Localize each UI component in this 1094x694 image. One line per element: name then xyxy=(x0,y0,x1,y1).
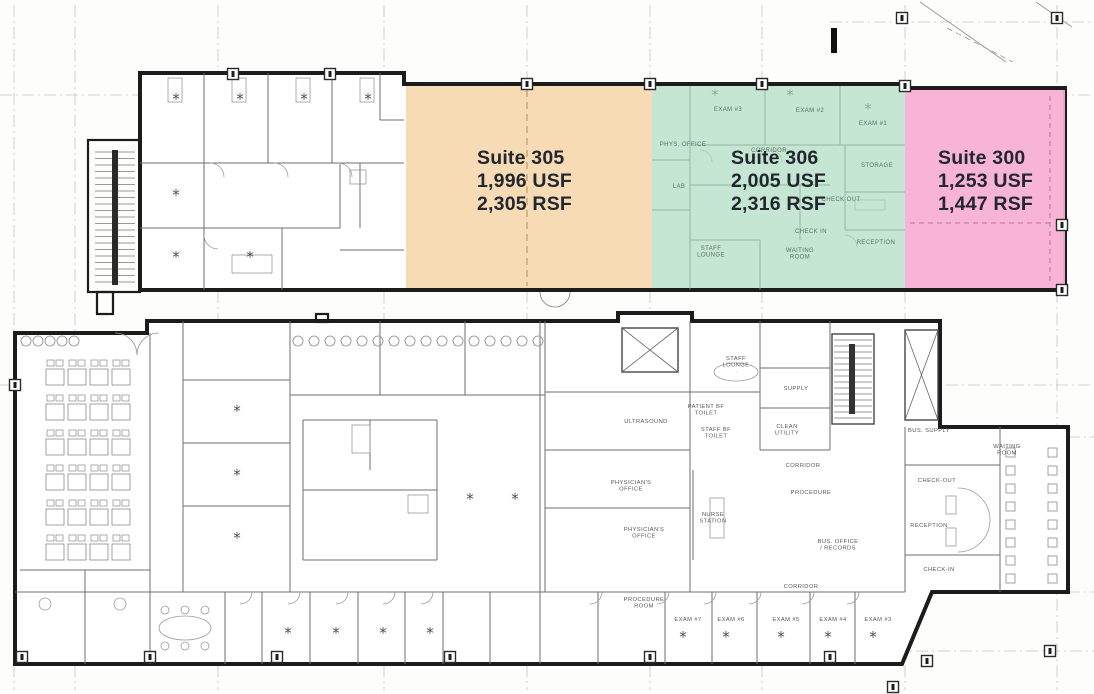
svg-text:PHYS. OFFICE: PHYS. OFFICE xyxy=(660,142,706,148)
svg-text:SUPPLY: SUPPLY xyxy=(784,386,809,392)
suite-305-label: Suite 305 1,996 USF 2,305 RSF xyxy=(477,147,572,216)
svg-text:*: * xyxy=(284,624,292,642)
svg-text:*: * xyxy=(379,624,387,642)
suite-300-usf: 1,253 USF xyxy=(938,170,1033,193)
floor-plan-drawing: ************************ EXAM #3EXAM #2E… xyxy=(0,0,1094,694)
svg-text:CHECK OUT: CHECK OUT xyxy=(822,197,861,203)
svg-text:EXAM #4: EXAM #4 xyxy=(819,617,847,623)
svg-text:CORRIDOR: CORRIDOR xyxy=(784,584,819,590)
svg-text:*: * xyxy=(172,90,180,108)
svg-text:*: * xyxy=(426,624,434,642)
svg-text:*: * xyxy=(679,628,687,646)
svg-text:*: * xyxy=(233,529,241,547)
suite-306-name: Suite 306 xyxy=(731,147,826,170)
svg-text:WAITINGROOM: WAITINGROOM xyxy=(993,444,1020,457)
svg-text:*: * xyxy=(300,90,308,108)
svg-text:*: * xyxy=(511,490,519,508)
svg-text:*: * xyxy=(722,628,730,646)
suite-305-name: Suite 305 xyxy=(477,147,572,170)
suite-300-name: Suite 300 xyxy=(938,147,1033,170)
svg-text:NURSESTATION: NURSESTATION xyxy=(699,512,726,525)
svg-text:CHECK-OUT: CHECK-OUT xyxy=(918,478,956,484)
svg-text:EXAM #5: EXAM #5 xyxy=(772,617,799,623)
suite-306-usf: 2,005 USF xyxy=(731,170,826,193)
suite-300-label: Suite 300 1,253 USF 1,447 RSF xyxy=(938,147,1033,216)
svg-text:*: * xyxy=(466,490,474,508)
suite-305-usf: 1,996 USF xyxy=(477,170,572,193)
svg-text:LAB: LAB xyxy=(673,184,686,190)
svg-text:CHECK IN: CHECK IN xyxy=(795,229,827,235)
site-marks xyxy=(831,2,1072,62)
svg-text:STAFFLOUNGE: STAFFLOUNGE xyxy=(723,356,750,369)
suite-305-rsf: 2,305 RSF xyxy=(477,193,572,216)
svg-text:RECEPTION: RECEPTION xyxy=(857,240,896,246)
svg-text:*: * xyxy=(233,402,241,420)
svg-text:EXAM #3: EXAM #3 xyxy=(714,107,742,113)
svg-text:ULTRASOUND: ULTRASOUND xyxy=(624,419,668,425)
svg-text:EXAM #7: EXAM #7 xyxy=(674,617,701,623)
suite-300-rsf: 1,447 RSF xyxy=(938,193,1033,216)
north-bar xyxy=(831,28,837,53)
stair-treads xyxy=(95,150,135,285)
svg-text:BUS. OFFICE/ RECORDS: BUS. OFFICE/ RECORDS xyxy=(818,539,859,552)
svg-text:PROCEDURE: PROCEDURE xyxy=(791,490,832,496)
suite-306-rsf: 2,316 RSF xyxy=(731,193,826,216)
svg-text:*: * xyxy=(233,466,241,484)
svg-text:*: * xyxy=(364,90,372,108)
svg-text:EXAM #1: EXAM #1 xyxy=(859,121,887,127)
svg-text:*: * xyxy=(824,628,832,646)
svg-text:STAFF BFTOILET: STAFF BFTOILET xyxy=(701,427,731,440)
svg-text:RECEPTION: RECEPTION xyxy=(910,523,947,529)
svg-text:EXAM #2: EXAM #2 xyxy=(796,108,824,114)
lower-building xyxy=(15,313,1068,664)
svg-text:WAITINGROOM: WAITINGROOM xyxy=(786,248,814,261)
suite-306-label: Suite 306 2,005 USF 2,316 RSF xyxy=(731,147,826,216)
svg-text:*: * xyxy=(869,628,877,646)
svg-text:CLEANUTILITY: CLEANUTILITY xyxy=(775,424,799,437)
svg-text:*: * xyxy=(172,186,180,204)
svg-text:EXAM #6: EXAM #6 xyxy=(717,617,744,623)
svg-text:*: * xyxy=(246,248,254,266)
svg-text:*: * xyxy=(172,248,180,266)
svg-text:*: * xyxy=(332,624,340,642)
svg-text:STORAGE: STORAGE xyxy=(861,163,893,169)
svg-text:*: * xyxy=(777,628,785,646)
floor-plan-canvas: ************************ EXAM #3EXAM #2E… xyxy=(0,0,1094,694)
svg-text:*: * xyxy=(236,90,244,108)
svg-text:CORRIDOR: CORRIDOR xyxy=(786,463,821,469)
svg-text:EXAM #3: EXAM #3 xyxy=(864,617,891,623)
svg-text:STAFFLOUNGE: STAFFLOUNGE xyxy=(697,246,725,259)
svg-text:BUS. SUPPLY: BUS. SUPPLY xyxy=(908,428,950,434)
svg-text:CHECK-IN: CHECK-IN xyxy=(923,567,954,573)
